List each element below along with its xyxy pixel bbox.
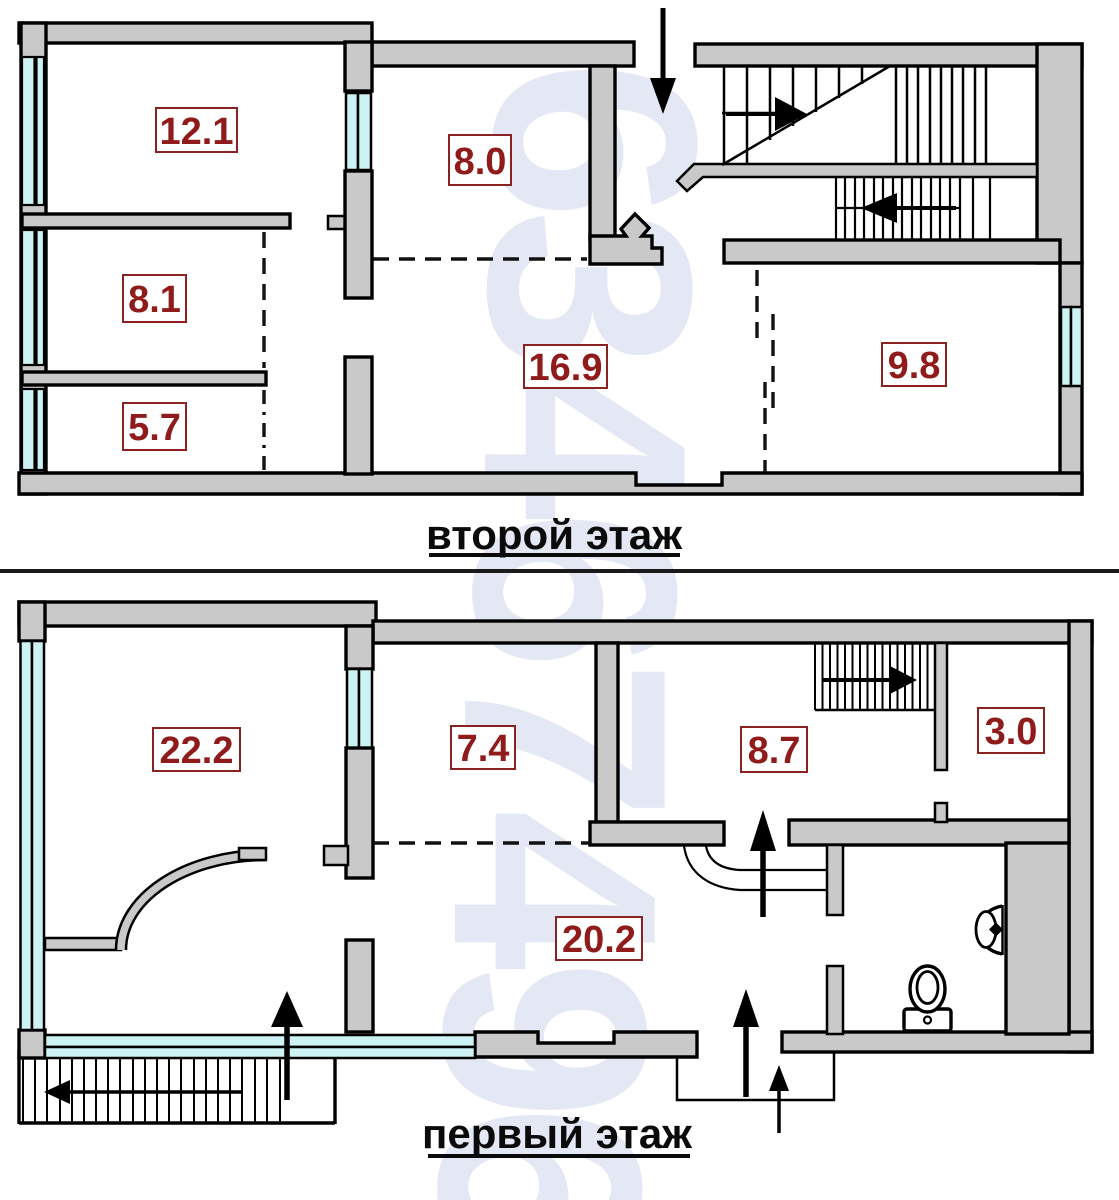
svg-text:7.4: 7.4 xyxy=(457,728,510,770)
svg-text:16.9: 16.9 xyxy=(529,347,603,389)
svg-text:второй этаж: второй этаж xyxy=(426,511,683,558)
svg-text:12.1: 12.1 xyxy=(160,111,234,153)
svg-text:8.0: 8.0 xyxy=(454,141,507,183)
svg-text:20.2: 20.2 xyxy=(562,919,636,961)
svg-text:8.1: 8.1 xyxy=(128,279,181,321)
svg-text:5.7: 5.7 xyxy=(128,407,181,449)
svg-text:8.7: 8.7 xyxy=(748,730,801,772)
svg-text:9.8: 9.8 xyxy=(888,345,941,387)
svg-text:22.2: 22.2 xyxy=(160,730,234,772)
svg-text:первый этаж: первый этаж xyxy=(422,1110,693,1157)
svg-text:3.0: 3.0 xyxy=(985,711,1038,753)
